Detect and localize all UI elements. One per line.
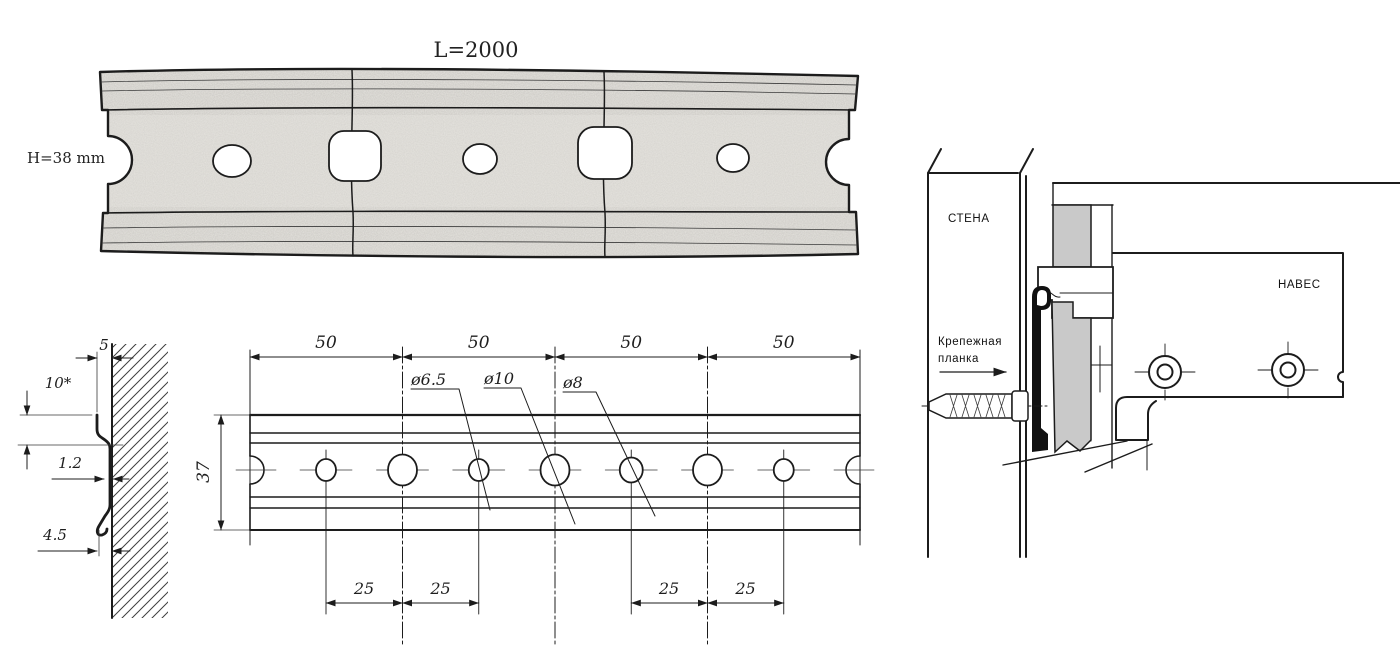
cam-adjuster (1135, 344, 1195, 400)
rail-photo-view: L=2000 H=38 mm (27, 38, 865, 262)
plan-dim-height: 37 (194, 461, 214, 483)
cabinet-label: НАВЕС (1278, 279, 1321, 291)
drawing-canvas: L=2000 H=38 mm 5 10* 1.2 4.5 (0, 0, 1400, 654)
rail-height-label: H=38 mm (27, 149, 105, 167)
rail-hole-small (213, 145, 251, 177)
cam-adjuster (1258, 342, 1318, 398)
plan-dim-25: 25 (429, 579, 450, 598)
plan-dim-25: 25 (658, 579, 679, 598)
plan-dim-50: 50 (773, 333, 795, 353)
plan-hole-10 (388, 455, 417, 486)
plan-dim-50: 50 (468, 333, 490, 353)
plan-hole-10 (541, 455, 570, 486)
profile-dim-bottom-offset: 4.5 (42, 526, 67, 544)
strip-label-line2: планка (938, 353, 979, 365)
cabinet-panel-top (1053, 205, 1091, 267)
plan-dim-50: 50 (620, 333, 642, 353)
plan-dim-25: 25 (353, 579, 374, 598)
wall-hatch (112, 344, 168, 618)
plan-hole-8 (620, 458, 643, 483)
plan-dia-mid-label: ø8 (562, 373, 583, 392)
profile-dim-thickness: 1.2 (58, 454, 82, 472)
strip-label-line1: Крепежная (938, 336, 1002, 348)
profile-dim-top-width: 5 (99, 336, 109, 354)
technical-drawing-page: L=2000 H=38 mm 5 10* 1.2 4.5 (0, 0, 1400, 654)
rail-hole-large (578, 127, 632, 179)
rail-hole-large (329, 131, 381, 181)
plan-hole-65 (469, 459, 489, 481)
plan-centerlines (403, 347, 708, 645)
wall-label: СТЕНА (948, 213, 990, 225)
profile-section-view: 5 10* 1.2 4.5 (18, 336, 168, 618)
plan-dim-50: 50 (315, 333, 337, 353)
rail-length-label: L=2000 (434, 38, 519, 62)
rail-hole-small (463, 144, 497, 174)
plan-view: 50 50 50 50 ø6.5 ø10 ø8 37 25 25 25 25 (194, 333, 874, 645)
plan-dia-small-label: ø6.5 (410, 370, 446, 389)
strip-profile (97, 415, 110, 535)
profile-dim-hook-height: 10* (45, 374, 72, 392)
installation-view: СТЕНА Крепежная планка НАВЕС (922, 149, 1400, 557)
plan-dia-large-label: ø10 (483, 369, 514, 388)
wall-screw (922, 391, 1048, 421)
plan-hole-10 (693, 455, 722, 486)
plan-hole-65 (774, 459, 794, 481)
cabinet-panel-bottom (1052, 302, 1091, 452)
rail-hole-small (717, 144, 749, 172)
plan-hole-65 (316, 459, 336, 481)
mounting-strip-section (1032, 286, 1051, 452)
plan-dim-25: 25 (734, 579, 755, 598)
